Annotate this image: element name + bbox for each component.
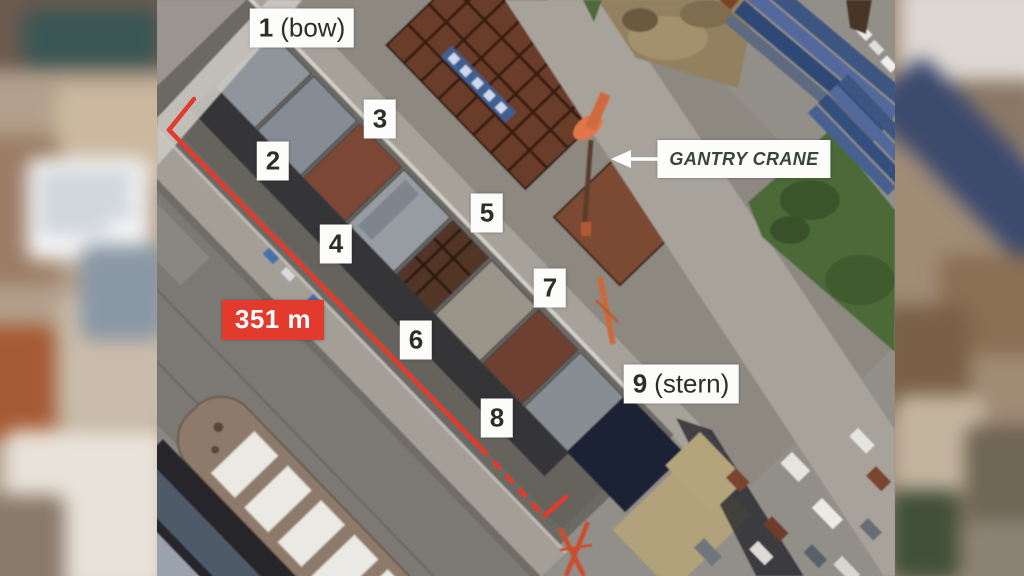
section-marker-4: 4 bbox=[320, 225, 352, 264]
marker-number: 3 bbox=[373, 104, 387, 134]
annotated-satellite-view: 1(bow)23456789(stern) 351 m GANTRY CRANE bbox=[0, 0, 1024, 576]
section-marker-1: 1(bow) bbox=[250, 9, 354, 48]
marker-number: 2 bbox=[266, 146, 280, 176]
section-marker-7: 7 bbox=[534, 269, 566, 308]
marker-suffix: (stern) bbox=[654, 369, 729, 399]
satellite-image bbox=[157, 0, 895, 576]
marker-number: 1 bbox=[259, 13, 273, 43]
section-marker-8: 8 bbox=[481, 399, 513, 438]
blur-blobs-left bbox=[0, 0, 157, 576]
marker-number: 4 bbox=[329, 229, 343, 259]
section-marker-5: 5 bbox=[471, 194, 503, 233]
marker-number: 7 bbox=[543, 273, 557, 303]
blurred-background-right bbox=[895, 0, 1024, 576]
blur-blobs-right bbox=[895, 0, 1024, 576]
marker-suffix: (bow) bbox=[280, 13, 345, 43]
section-marker-3: 3 bbox=[364, 100, 396, 139]
section-marker-2: 2 bbox=[257, 142, 289, 181]
marker-number: 5 bbox=[480, 198, 494, 228]
distance-label: 351 m bbox=[222, 300, 324, 340]
blurred-background-left bbox=[0, 0, 157, 576]
section-marker-6: 6 bbox=[400, 321, 432, 360]
marker-number: 8 bbox=[490, 403, 504, 433]
marker-number: 6 bbox=[409, 325, 423, 355]
marker-number: 9 bbox=[633, 369, 647, 399]
section-marker-9: 9(stern) bbox=[624, 365, 739, 404]
gantry-crane-label: GANTRY CRANE bbox=[657, 140, 830, 178]
